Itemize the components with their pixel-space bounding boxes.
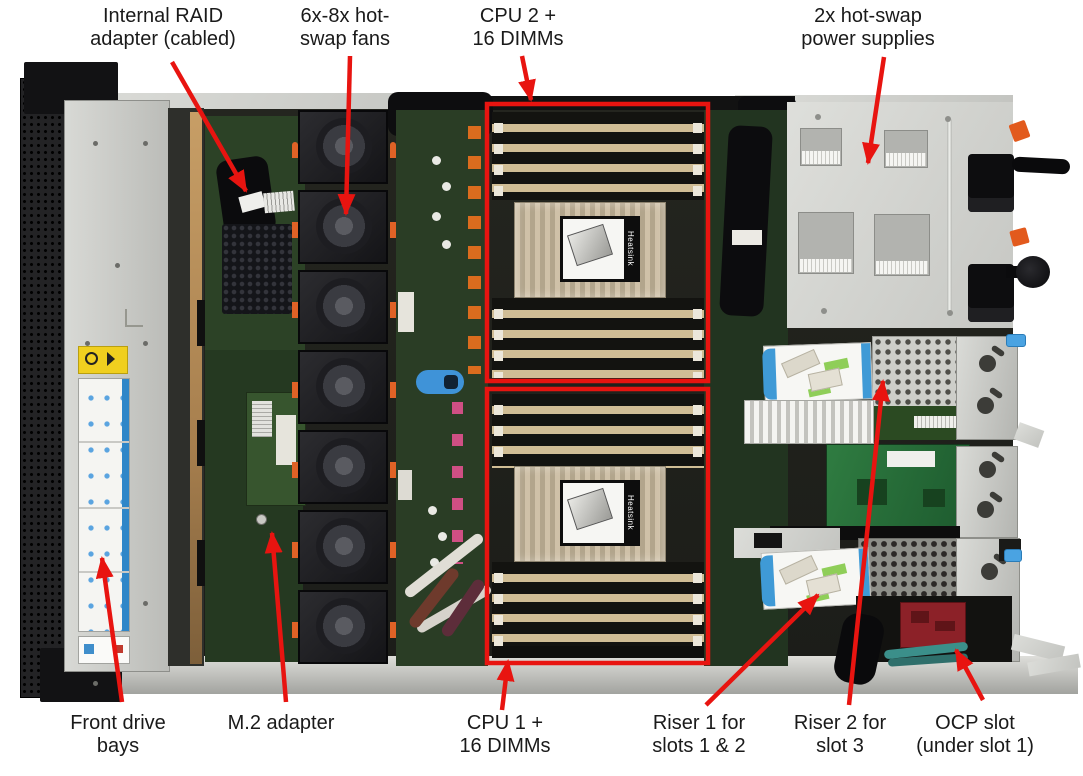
ocp-chip (911, 611, 929, 623)
callout-label-line: Front drive (70, 712, 166, 735)
cpu1-heatsink-label: Heatsink (560, 480, 640, 546)
riser1-label-card (761, 547, 872, 610)
callout-label-line: 16 DIMMs (459, 735, 550, 758)
raid-barcode-label (263, 191, 295, 214)
riser2-bracket (956, 336, 1018, 440)
callout-label-line: swap fans (300, 28, 390, 51)
psu2-knob (1016, 256, 1050, 288)
card-diagram (806, 573, 841, 598)
raid-heatsink (222, 224, 292, 314)
card-diagram (808, 368, 843, 392)
mount-latch (754, 533, 782, 548)
callout-label-line: CPU 2 + (472, 5, 563, 28)
heatsink-label-text: Heatsink (624, 483, 637, 543)
cpu2-heatsink-label: Heatsink (560, 216, 640, 282)
pcb-label (914, 416, 958, 428)
label-blue-chip (84, 644, 94, 654)
fan-6 (298, 510, 388, 584)
fan-3 (298, 270, 388, 344)
panel-corner-mark (125, 309, 143, 327)
card-chip (857, 479, 887, 505)
cpu1-dimm-bank-upper (492, 394, 704, 468)
server-photo: Heatsink Heatsink (0, 0, 1083, 776)
service-instruction-label (78, 378, 130, 632)
m2-screw (256, 514, 267, 525)
psu2-release-tab (1009, 227, 1030, 247)
keyhole-cutout (979, 355, 996, 372)
callout-label-line: 2x hot-swap (801, 5, 934, 28)
psu1-handle (968, 154, 1014, 212)
callout-label-line: 16 DIMMs (472, 28, 563, 51)
card-blue-cap (760, 555, 776, 607)
riser2-label-card (763, 342, 873, 403)
latch-center (444, 375, 458, 389)
capacitor-dots (432, 156, 441, 165)
riser1-blue-tab (1004, 549, 1022, 562)
callout-label-power-supplies: 2x hot-swappower supplies (801, 5, 934, 51)
keyhole-cutout (979, 461, 996, 478)
psu-window-2 (884, 130, 928, 168)
callout-label-line: slots 1 & 2 (652, 735, 745, 758)
screw-dots (93, 141, 98, 146)
psu-window-4 (874, 214, 930, 276)
warning-label (78, 346, 128, 374)
psu1-pull-lever (1012, 156, 1071, 174)
power-info-label (78, 636, 130, 664)
psu-emboss-line (947, 118, 952, 314)
psu-window-3 (798, 212, 854, 274)
callout-label-riser2: Riser 2 forslot 3 (794, 712, 886, 758)
card-blue-bar (861, 343, 872, 398)
card-chip (923, 489, 945, 507)
m2-label-1 (252, 401, 272, 437)
white-connector-2 (398, 470, 412, 500)
psu-screws (815, 114, 821, 120)
keyhole-cutout (981, 563, 998, 580)
callout-label-ocp-slot: OCP slot(under slot 1) (916, 712, 1034, 758)
callout-label-line: bays (70, 735, 166, 758)
warning-triangle-icon (107, 352, 115, 366)
pcie-card-bracket (956, 446, 1018, 538)
cpu2-dimm-bank-lower (492, 298, 704, 378)
cpu2-dimm-bank-upper (492, 112, 704, 200)
callout-label-internal-raid-adapter: Internal RAIDadapter (cabled) (90, 5, 236, 51)
callout-label-riser1: Riser 1 forslots 1 & 2 (652, 712, 745, 758)
callout-label-m2-adapter: M.2 adapter (228, 712, 335, 735)
fan-7 (298, 590, 388, 664)
heatsink-diagram (567, 488, 613, 530)
riser2-hinge (1014, 422, 1045, 448)
callout-label-cpu1-16-dimms: CPU 1 +16 DIMMs (459, 712, 550, 758)
callout-label-line: adapter (cabled) (90, 28, 236, 51)
fan-2 (298, 190, 388, 264)
psu-cable-band (732, 230, 762, 245)
callout-label-line: M.2 adapter (228, 712, 335, 735)
callout-label-line: Riser 2 for (794, 712, 886, 735)
ocp-card (900, 602, 966, 648)
cpu1-black-base (492, 646, 704, 658)
riser2-corrugated-heatsink (744, 400, 874, 444)
riser2-blue-tab (1006, 334, 1026, 347)
card-blue-cap (762, 348, 777, 399)
white-connector-1 (398, 292, 414, 332)
fan-column (296, 110, 392, 666)
callout-label-line: OCP slot (916, 712, 1034, 735)
callout-label-hot-swap-fans: 6x-8x hot-swap fans (300, 5, 390, 51)
callout-label-line: CPU 1 + (459, 712, 550, 735)
callout-label-front-drive-bays: Front drivebays (70, 712, 166, 758)
no-touch-icon (85, 352, 98, 365)
callout-label-line: 6x-8x hot- (300, 5, 390, 28)
front-bezel (20, 78, 66, 698)
card-white-label (887, 451, 935, 467)
heatsink-label-text: Heatsink (624, 219, 637, 279)
fan-1 (298, 110, 388, 184)
annotated-server-diagram: Heatsink Heatsink (0, 0, 1083, 776)
ocp-chip (935, 621, 955, 631)
fan-5 (298, 430, 388, 504)
cpu1-dimm-bank-lower (492, 562, 704, 646)
callout-label-cpu2-16-dimms: CPU 2 +16 DIMMs (472, 5, 563, 51)
callout-label-line: Riser 1 for (652, 712, 745, 735)
blue-touchpoint-latch (416, 370, 464, 394)
label-red-chip (115, 645, 123, 653)
fan-4 (298, 350, 388, 424)
dimm-latch-column-pink (452, 402, 463, 564)
heatsink-diagram (567, 224, 613, 266)
psu-window-1 (800, 128, 842, 166)
pcie-adapter-card (826, 444, 970, 538)
fan-clips-left (292, 142, 298, 654)
callout-label-line: (under slot 1) (916, 735, 1034, 758)
callout-label-line: Internal RAID (90, 5, 236, 28)
dimm-latch-column-orange (468, 126, 481, 374)
callout-label-line: power supplies (801, 28, 934, 51)
keyhole-cutout (977, 501, 994, 518)
keyhole-cutout (977, 397, 994, 414)
callout-label-line: slot 3 (794, 735, 886, 758)
